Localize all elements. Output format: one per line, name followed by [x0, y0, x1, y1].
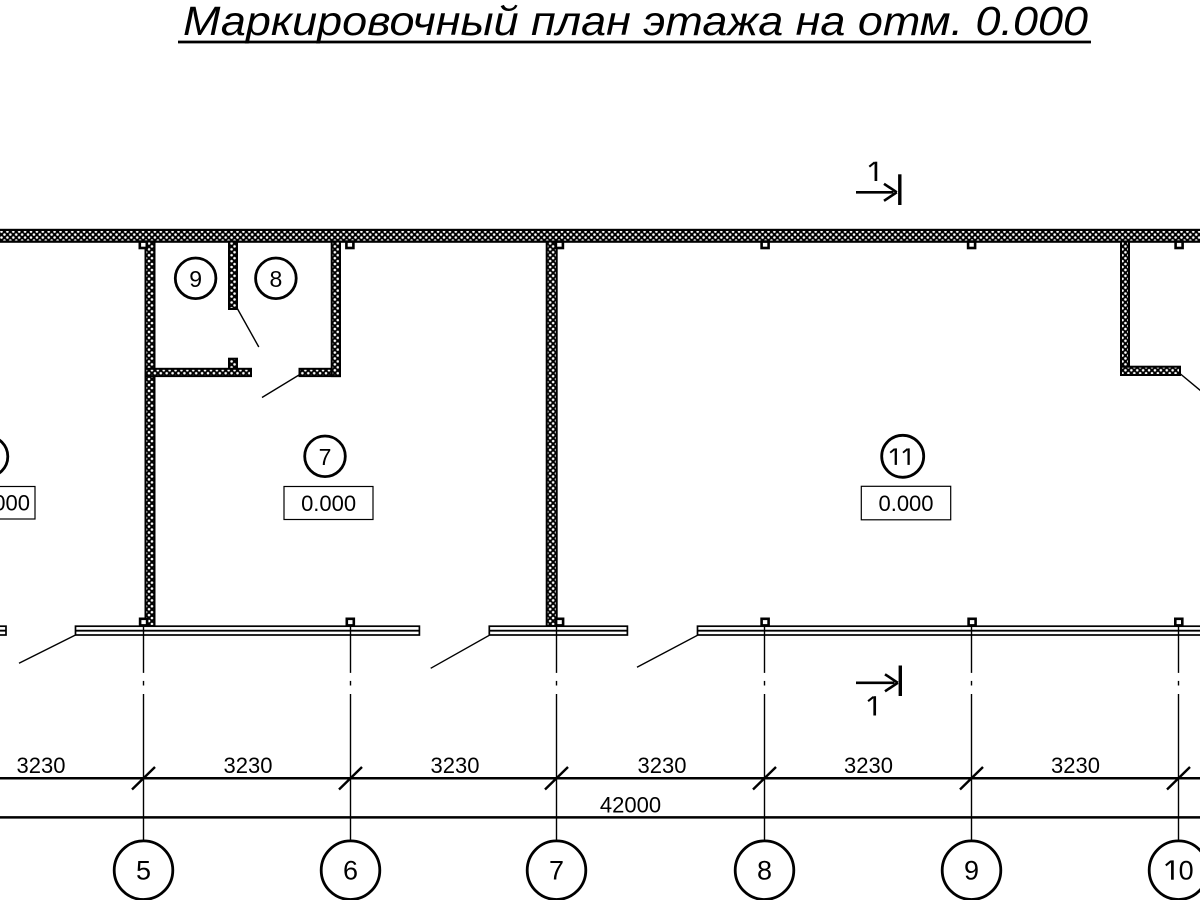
svg-text:3230: 3230: [1051, 753, 1100, 778]
svg-text:5: 5: [136, 856, 151, 886]
svg-text:8: 8: [757, 856, 772, 886]
svg-text:0: 0: [1179, 856, 1194, 886]
svg-text:0.000: 0.000: [301, 491, 356, 516]
svg-text:3230: 3230: [17, 753, 66, 778]
svg-text:9: 9: [189, 266, 202, 292]
svg-text:42000: 42000: [600, 793, 661, 818]
svg-text:6: 6: [343, 856, 358, 886]
svg-text:7: 7: [319, 444, 332, 470]
svg-text:0.000: 0.000: [0, 491, 30, 516]
svg-text:3230: 3230: [224, 753, 273, 778]
svg-text:0.000: 0.000: [878, 491, 933, 516]
svg-text:3230: 3230: [638, 753, 687, 778]
svg-text:Маркировочный план этажа на от: Маркировочный план этажа на отм. 0.000: [183, 0, 1088, 44]
svg-text:7: 7: [549, 856, 564, 886]
svg-text:3230: 3230: [431, 753, 480, 778]
svg-text:9: 9: [964, 856, 979, 886]
svg-text:8: 8: [270, 266, 283, 292]
svg-text:3230: 3230: [844, 753, 893, 778]
